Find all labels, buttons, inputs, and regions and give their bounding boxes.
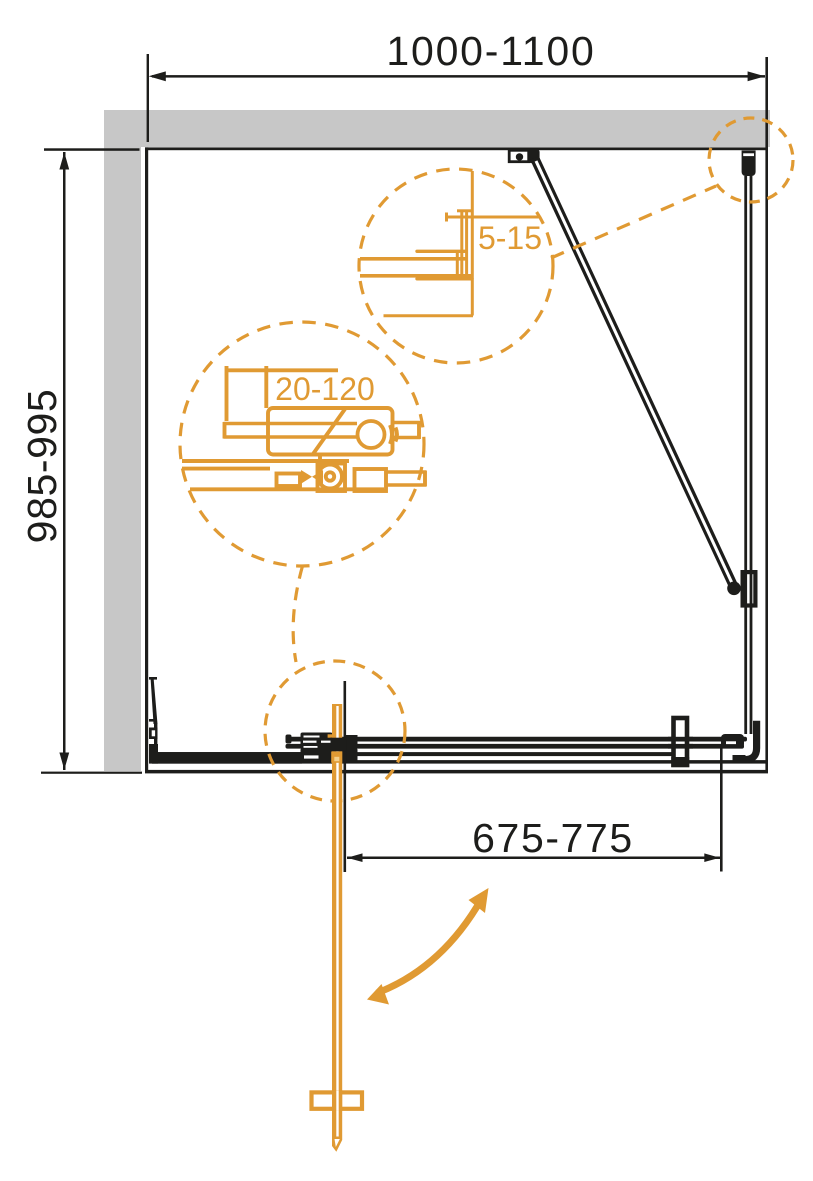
svg-text:5-15: 5-15 — [478, 220, 542, 256]
svg-text:985-995: 985-995 — [19, 389, 65, 544]
svg-text:20-120: 20-120 — [275, 371, 375, 407]
svg-text:1000-1100: 1000-1100 — [386, 28, 595, 74]
svg-text:675-775: 675-775 — [472, 815, 634, 861]
